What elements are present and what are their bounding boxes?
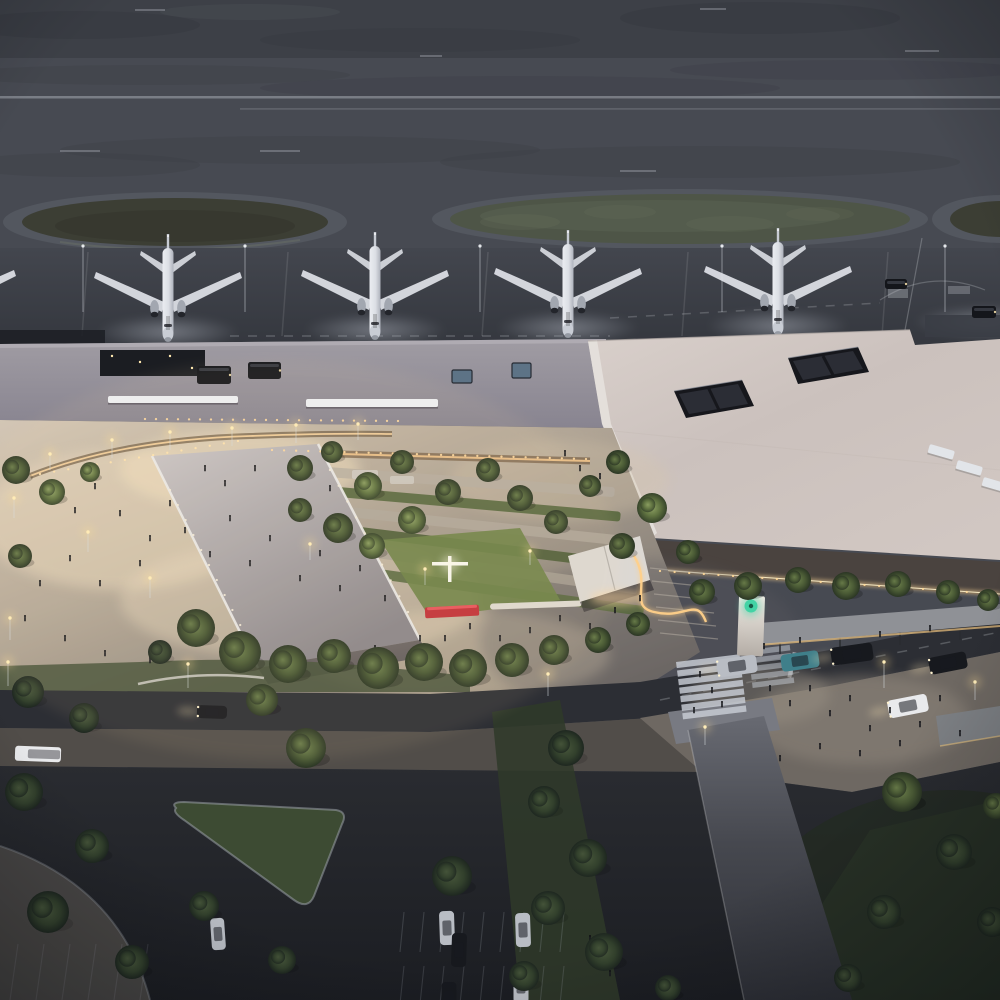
vignette bbox=[0, 0, 1000, 1000]
airport-aerial-rendering bbox=[0, 0, 1000, 1000]
rendering-canvas bbox=[0, 0, 1000, 1000]
